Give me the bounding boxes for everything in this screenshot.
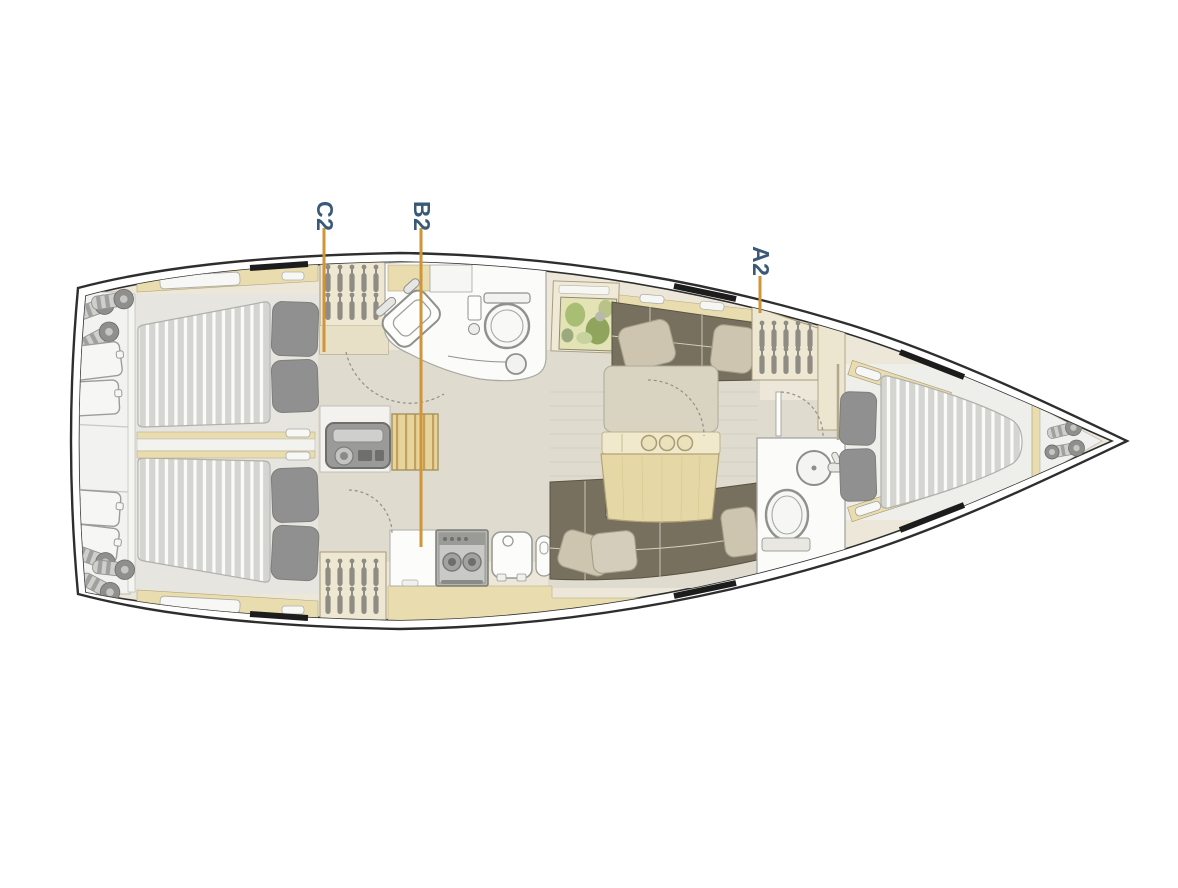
engine-box xyxy=(137,429,315,460)
yacht-layout-plan: C2 B2 A2 xyxy=(0,0,1178,888)
table-top xyxy=(601,454,719,522)
berth-pillow xyxy=(271,467,319,523)
berth-pillow xyxy=(839,391,877,445)
galley-counter xyxy=(390,530,436,586)
label-c2: C2 xyxy=(312,201,338,231)
berth-pillow xyxy=(271,525,320,581)
label-b2: B2 xyxy=(409,201,435,231)
head-door-leaf xyxy=(776,392,781,436)
hull-window-icon xyxy=(250,264,308,268)
berth-pillow xyxy=(271,359,319,413)
hull-window-icon xyxy=(250,614,308,618)
stove xyxy=(436,530,488,586)
wardrobe-aft-port xyxy=(320,258,388,354)
settee-pillow xyxy=(590,530,638,574)
yacht-floorplan-page: C2 B2 A2 xyxy=(0,0,1178,888)
aft-berth-starboard xyxy=(138,458,270,582)
settee-pillow xyxy=(720,506,760,558)
wardrobe-aft-starboard xyxy=(320,552,386,622)
settee-pillow xyxy=(709,324,756,375)
berth-pillow xyxy=(271,301,319,357)
instrument-panel xyxy=(326,423,390,468)
interior xyxy=(66,258,1102,623)
table-leaf-folded xyxy=(604,366,718,432)
berth-pillow xyxy=(839,448,877,501)
stern-bulkhead xyxy=(128,294,135,592)
chart-cabinet xyxy=(551,281,619,353)
label-a2: A2 xyxy=(748,246,774,276)
salon-table xyxy=(601,366,720,523)
galley-sink xyxy=(492,532,532,581)
companionway-steps xyxy=(392,414,438,470)
